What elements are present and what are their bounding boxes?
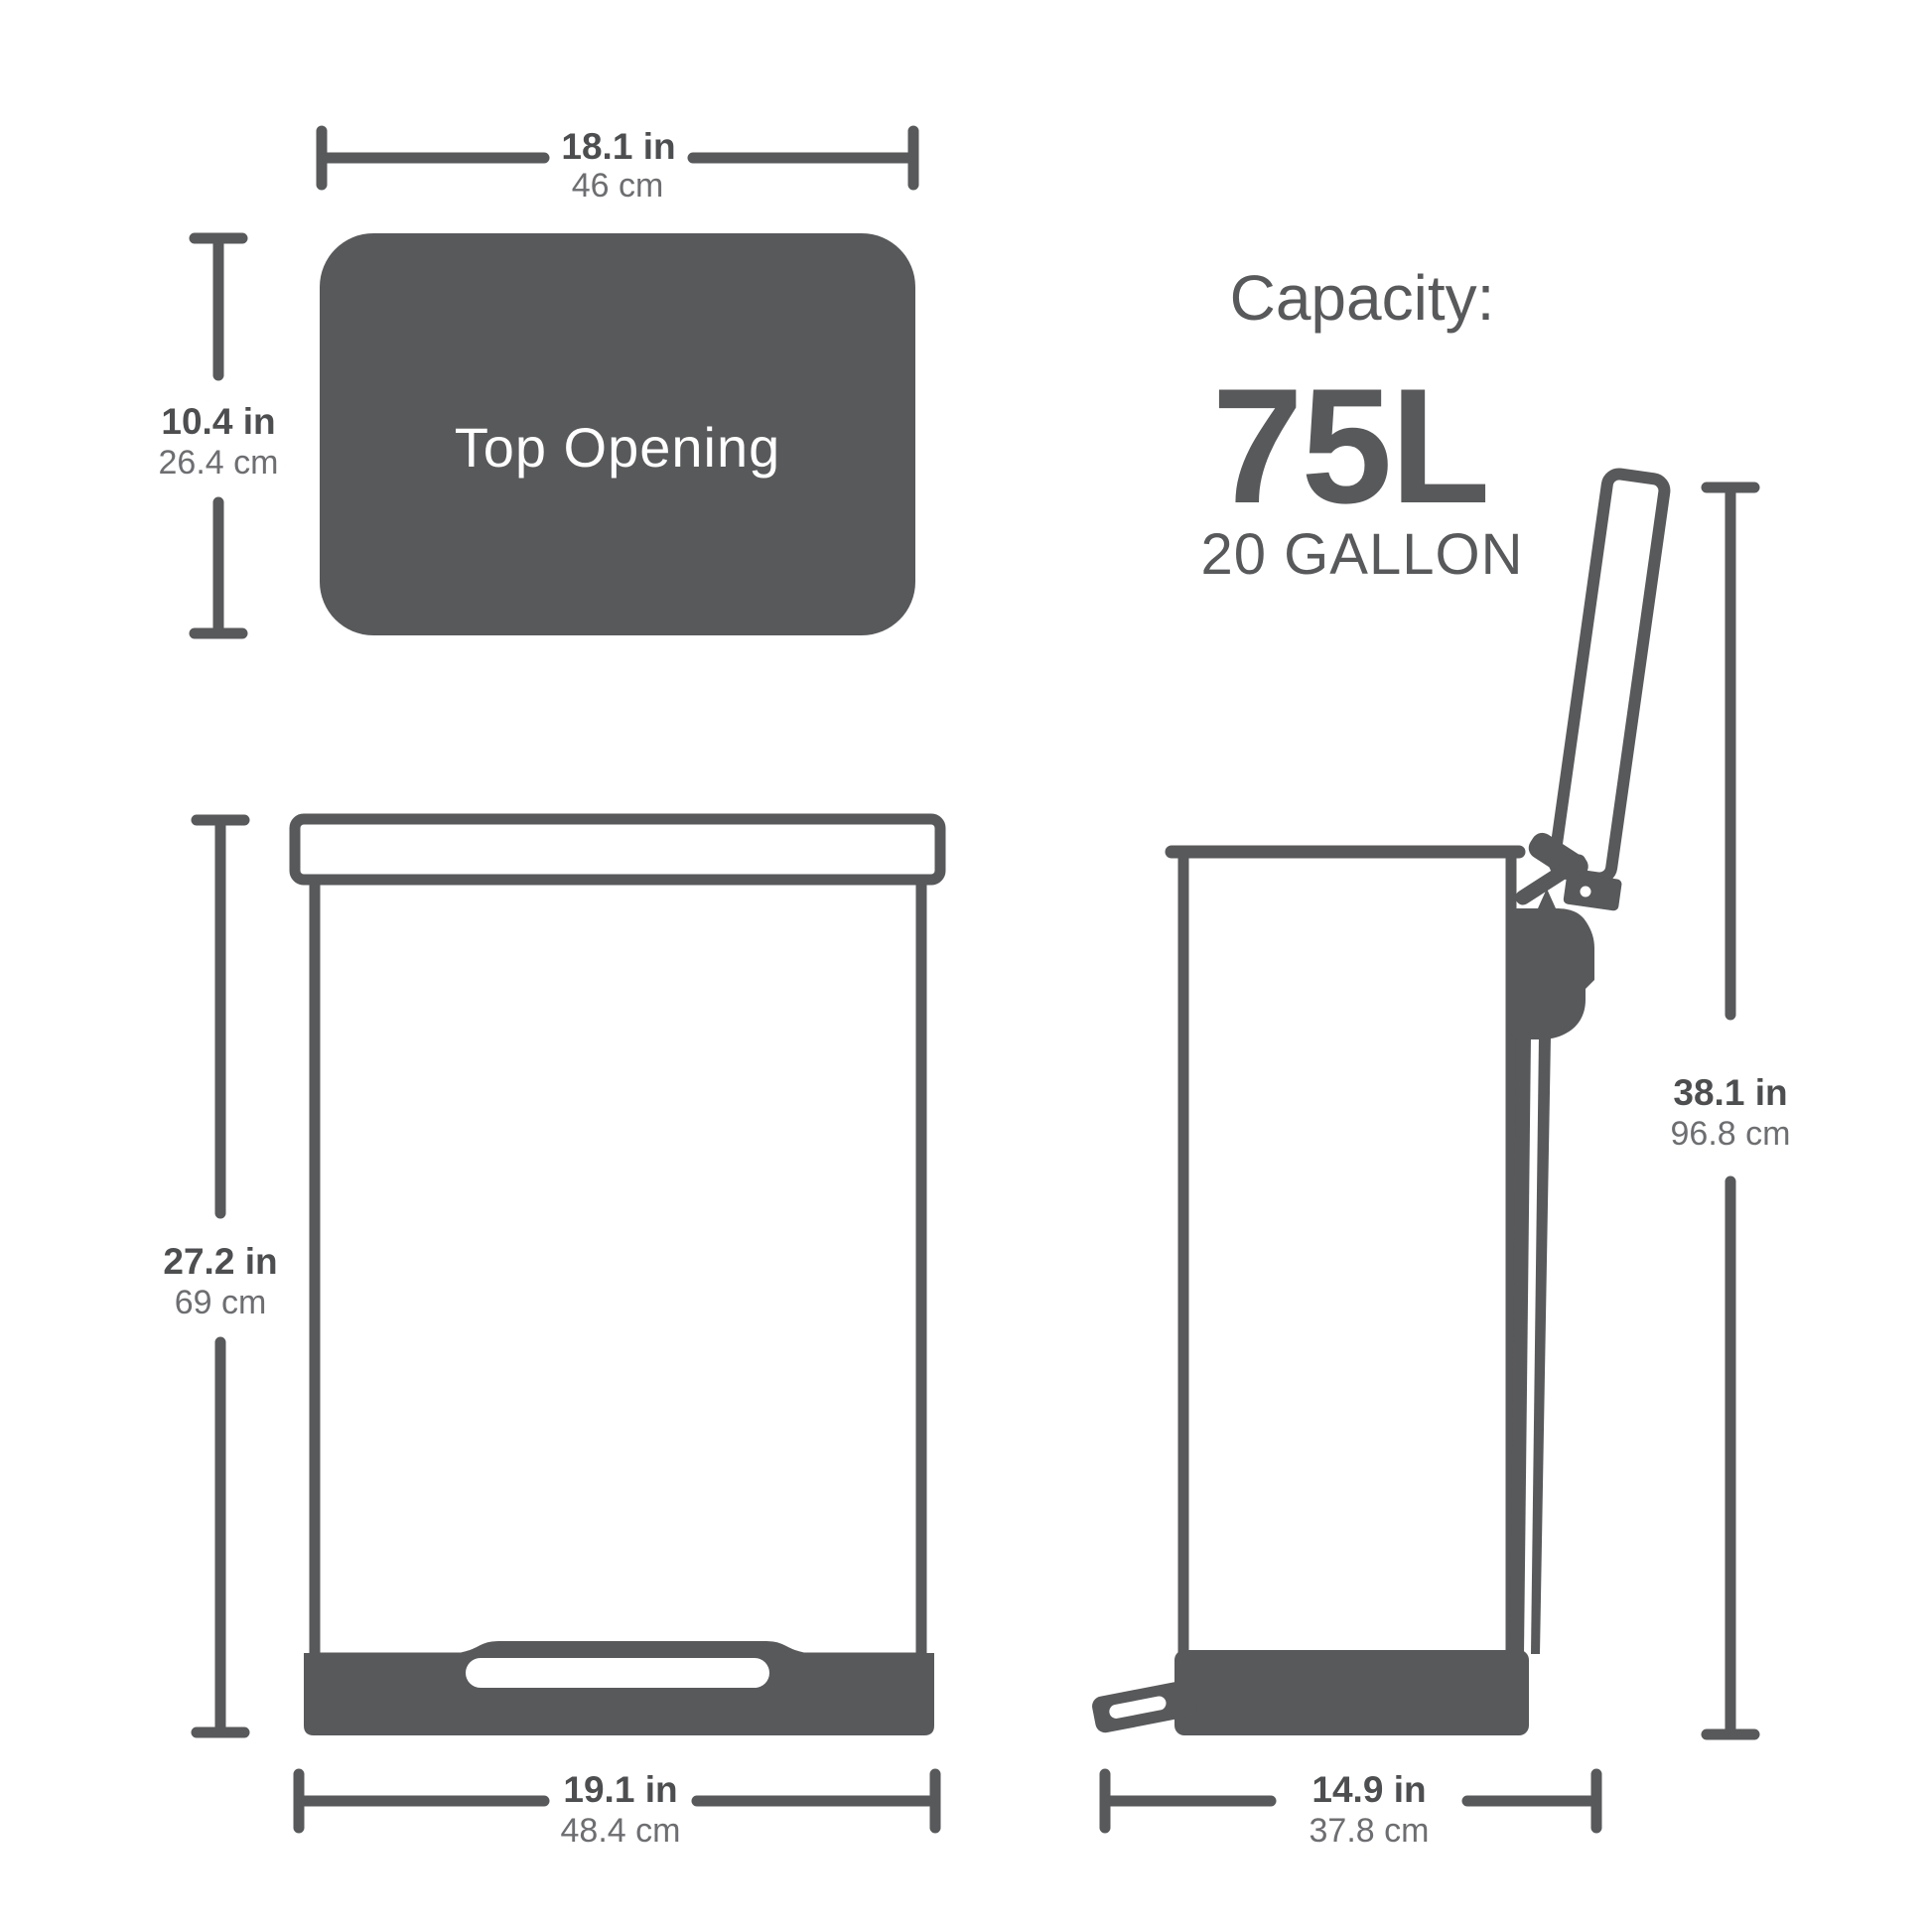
side-open-lid-panel — [1553, 473, 1666, 880]
capacity-liters: 75L — [1212, 354, 1488, 537]
capacity-heading: Capacity: — [1230, 262, 1495, 334]
front-view-width-dimension: 19.1 in 48.4 cm — [299, 1769, 935, 1850]
side-view-height-dimension: 38.1 in 96.8 cm — [1671, 487, 1791, 1734]
side-depth-cm-label: 37.8 cm — [1310, 1812, 1430, 1850]
top-view-depth-dimension: 10.4 in 26.4 cm — [159, 238, 279, 633]
front-lid — [295, 819, 940, 880]
top-width-inches-label: 18.1 in — [561, 126, 675, 167]
front-width-inches-label: 19.1 in — [563, 1769, 677, 1810]
front-height-cm-label: 69 cm — [175, 1284, 267, 1321]
hinge-lock-body — [1506, 889, 1594, 1039]
side-view: 38.1 in 96.8 cm 14.9 in 37.8 cm — [1090, 473, 1790, 1850]
top-view: 18.1 in 46 cm 10.4 in 26.4 cm Top Openin… — [159, 126, 915, 635]
front-pedal-slot — [466, 1658, 769, 1688]
front-height-inches-label: 27.2 in — [163, 1241, 277, 1282]
dimensions-diagram: 18.1 in 46 cm 10.4 in 26.4 cm Top Openin… — [0, 0, 1932, 1932]
side-base — [1174, 1650, 1529, 1735]
side-height-cm-label: 96.8 cm — [1671, 1115, 1791, 1153]
hinge-plate — [1563, 872, 1622, 910]
side-hinge-mechanism — [1506, 829, 1622, 1654]
side-depth-inches-label: 14.9 in — [1311, 1769, 1426, 1810]
hinge-pivot-hole — [1581, 887, 1591, 897]
spec-sheet: 18.1 in 46 cm 10.4 in 26.4 cm Top Openin… — [0, 0, 1932, 1932]
pedal-rod-back — [1531, 1036, 1551, 1654]
capacity-gallons: 20 GALLON — [1201, 522, 1524, 587]
side-view-depth-dimension: 14.9 in 37.8 cm — [1105, 1769, 1596, 1850]
top-depth-inches-label: 10.4 in — [161, 401, 275, 442]
front-width-cm-label: 48.4 cm — [561, 1812, 681, 1850]
top-depth-cm-label: 26.4 cm — [159, 444, 279, 482]
top-view-width-dimension: 18.1 in 46 cm — [322, 126, 913, 205]
top-opening-label: Top Opening — [455, 416, 781, 479]
side-open-lid — [1553, 473, 1666, 880]
capacity-block: Capacity: 75L 20 GALLON — [1201, 262, 1524, 587]
hinge-plate-body — [1563, 872, 1622, 910]
front-body — [315, 880, 921, 1658]
side-height-inches-label: 38.1 in — [1673, 1072, 1787, 1113]
front-view: 27.2 in 69 cm 19.1 in 48.4 cm — [163, 819, 940, 1850]
top-width-cm-label: 46 cm — [572, 167, 664, 205]
front-view-height-dimension: 27.2 in 69 cm — [163, 820, 277, 1732]
